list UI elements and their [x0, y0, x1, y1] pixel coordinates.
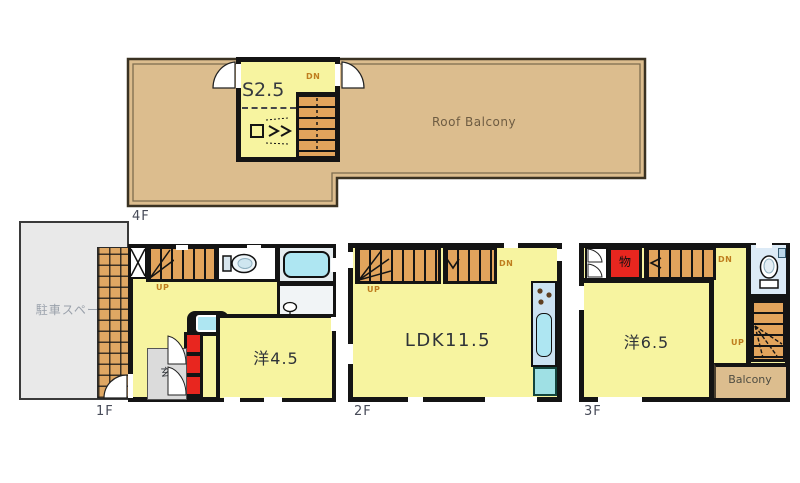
room-west-6-5-label: 洋6.5: [584, 334, 709, 352]
window-gap: [331, 258, 336, 272]
stairs-3f-dn-label: DN: [718, 256, 732, 265]
window-gap: [557, 249, 562, 261]
window-gap: [579, 286, 584, 310]
floor-2-label: 2F: [354, 405, 372, 419]
bathtub-icon: [283, 251, 330, 278]
window-gap: [331, 317, 336, 331]
floor-1-label: 1F: [96, 405, 114, 419]
closet-door-arcs-1f: [166, 334, 188, 398]
stairs-3f-fan: [753, 324, 784, 360]
shaft-window-x-icon: [129, 246, 147, 279]
stairs-1f-fan: [148, 248, 174, 280]
room-s25-label: S2.5: [242, 80, 284, 101]
window-gap: [485, 397, 537, 402]
window-gap: [756, 243, 772, 248]
window-gap: [348, 344, 353, 364]
roof-balcony-outline: [125, 56, 650, 211]
entrance-door-arc: [103, 373, 129, 400]
kitchen-appliance: [533, 367, 557, 396]
floor-3-label: 3F: [584, 405, 602, 419]
window-gap: [598, 397, 642, 402]
interior-wall: [584, 278, 714, 283]
stairs-2f-arrow: [445, 256, 461, 272]
window-gap: [264, 397, 282, 402]
balcony-3f-label: Balcony: [714, 374, 786, 386]
floor-4-label: 4F: [132, 210, 150, 224]
ladder-icon: [248, 116, 294, 146]
window-gap: [348, 252, 353, 268]
stairs-4f-arrow: [298, 94, 336, 156]
door-arc-4f-left: [211, 60, 237, 90]
closet-door-arcs-3f: [586, 248, 607, 279]
stairs-2f-fan: [357, 249, 391, 282]
stove-burners-icon: [533, 285, 555, 309]
stairs-2f-up-label: UP: [367, 286, 380, 295]
stairs-1f-up-label: UP: [156, 284, 169, 293]
room-west-4-5-label: 洋4.5: [216, 350, 336, 368]
stairs-3f-up-label: UP: [731, 339, 744, 348]
window-gap: [504, 243, 518, 248]
door-arc-4f-right: [340, 60, 366, 90]
loft-divider-dashed-line: [242, 107, 296, 109]
stairs-2f-dn-label: DN: [499, 260, 513, 269]
toilet-icon-1f: [222, 252, 262, 275]
roof-balcony-label: Roof Balcony: [432, 116, 552, 129]
stairs-3f-arrow: [647, 256, 663, 270]
stairs-4f-dn-label: DN: [306, 73, 320, 82]
room-ldk-label: LDK11.5: [348, 331, 548, 351]
window-gap: [224, 397, 240, 402]
window-gap: [176, 245, 188, 250]
floor-plan: Roof Balcony S2.5 DN 4F 駐車スペース: [0, 0, 800, 483]
window-gap: [247, 245, 261, 250]
storage-box-label: 物: [608, 256, 642, 269]
cistern-icon: [778, 248, 786, 258]
window-gap: [408, 397, 423, 402]
